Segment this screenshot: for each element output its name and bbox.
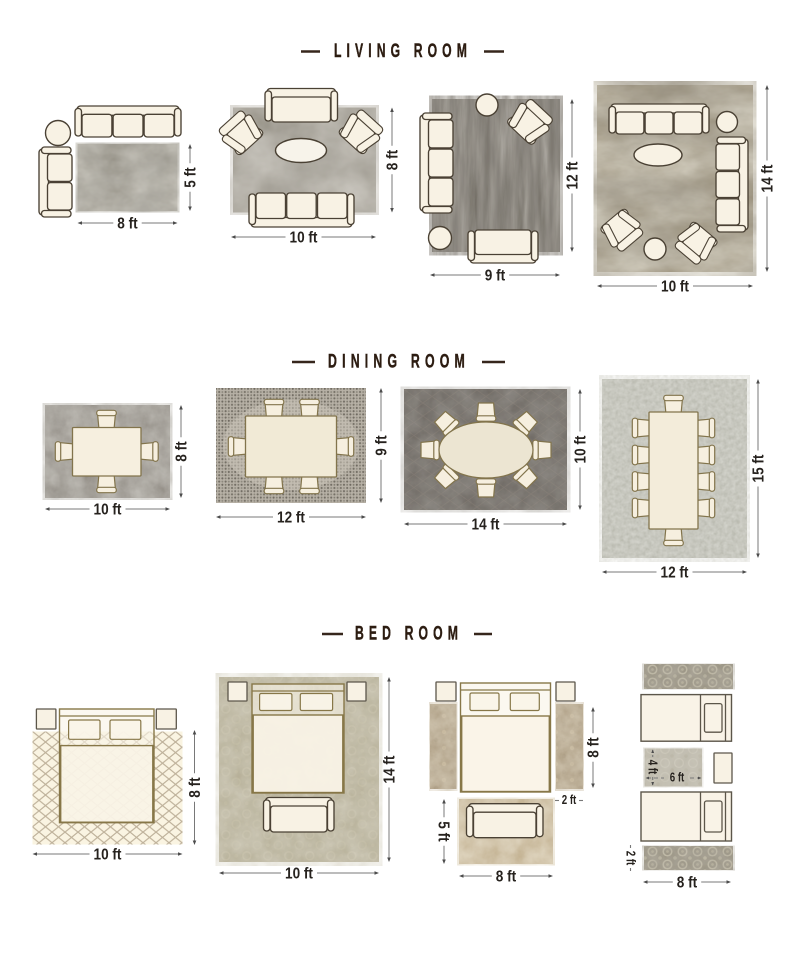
svg-text:10 ft: 10 ft xyxy=(94,501,122,518)
svg-text:14 ft: 14 ft xyxy=(759,164,776,192)
svg-text:2 ft: 2 ft xyxy=(562,794,577,807)
svg-text:14 ft: 14 ft xyxy=(472,516,500,533)
svg-text:5 ft: 5 ft xyxy=(434,821,451,841)
svg-text:8 ft: 8 ft xyxy=(677,874,697,891)
svg-text:2 ft: 2 ft xyxy=(623,851,636,866)
svg-text:LIVING ROOM: LIVING ROOM xyxy=(334,41,472,62)
svg-text:DINING ROOM: DINING ROOM xyxy=(328,352,470,373)
svg-text:12 ft: 12 ft xyxy=(661,564,689,581)
svg-text:14 ft: 14 ft xyxy=(381,755,398,783)
svg-text:12 ft: 12 ft xyxy=(564,161,581,189)
svg-text:12 ft: 12 ft xyxy=(277,509,305,526)
svg-text:8 ft: 8 ft xyxy=(187,777,204,797)
svg-text:6 ft: 6 ft xyxy=(670,771,685,784)
svg-text:4 ft: 4 ft xyxy=(645,760,658,775)
svg-text:8 ft: 8 ft xyxy=(117,215,137,232)
svg-text:8 ft: 8 ft xyxy=(496,868,516,885)
svg-text:5 ft: 5 ft xyxy=(182,167,199,187)
svg-text:10 ft: 10 ft xyxy=(572,435,589,463)
svg-text:9 ft: 9 ft xyxy=(373,435,390,455)
svg-text:15 ft: 15 ft xyxy=(750,454,767,482)
svg-text:8 ft: 8 ft xyxy=(585,737,602,757)
svg-text:BED ROOM: BED ROOM xyxy=(355,624,463,645)
svg-text:10 ft: 10 ft xyxy=(94,846,122,863)
svg-text:9 ft: 9 ft xyxy=(485,267,505,284)
svg-text:10 ft: 10 ft xyxy=(661,278,689,295)
svg-text:10 ft: 10 ft xyxy=(285,865,313,882)
svg-text:8 ft: 8 ft xyxy=(173,441,190,461)
svg-text:10 ft: 10 ft xyxy=(290,229,318,246)
svg-text:8 ft: 8 ft xyxy=(384,150,401,170)
